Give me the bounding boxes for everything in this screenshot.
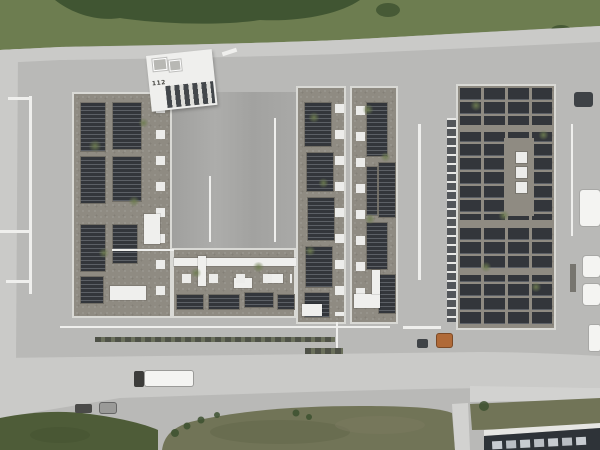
white-van	[583, 284, 600, 305]
hedge-section	[305, 348, 343, 354]
tree-clump	[376, 3, 400, 17]
rooftop-unit	[169, 59, 182, 71]
solar-array	[80, 276, 104, 304]
solar-array	[378, 274, 396, 314]
tower-louvers	[165, 81, 215, 108]
solar-array	[307, 197, 335, 241]
tower-roof-marking: 112	[152, 79, 167, 87]
pavement-strip	[570, 264, 576, 292]
parked-car	[75, 404, 92, 413]
moss-patch	[530, 282, 542, 292]
white-box-truck	[580, 190, 600, 226]
moss-patch	[318, 178, 329, 188]
perimeter-wall	[8, 97, 29, 100]
solar-array	[80, 156, 106, 204]
left-wing-roof	[72, 92, 172, 318]
roof-duct	[110, 286, 146, 300]
roof-aisle	[460, 220, 556, 227]
solar-array	[366, 222, 388, 270]
moss-patch	[470, 100, 482, 111]
white-van	[583, 256, 600, 277]
dividing-wall-far-east	[571, 124, 573, 236]
aerial-photo-industrial-complex: 112	[0, 0, 600, 450]
dark-car	[574, 92, 593, 107]
truck-trailer	[145, 371, 193, 386]
moss-patch	[190, 268, 202, 278]
perimeter-wall-west	[29, 96, 32, 294]
middle-hall-a-roof	[296, 86, 346, 324]
inner-parapet	[112, 249, 174, 251]
courtyard-marking-line	[209, 176, 211, 242]
right-hall-west-facade	[447, 118, 456, 322]
moss-patch	[128, 196, 140, 207]
roof-duct	[302, 304, 322, 316]
solar-array	[112, 224, 138, 264]
hedge-fence-south	[95, 337, 335, 342]
courtyard-marking-line	[274, 118, 276, 242]
skylight-column	[156, 104, 165, 296]
roof-aisle	[460, 268, 556, 275]
car-at-gate	[417, 339, 428, 348]
skylight-column	[335, 104, 344, 316]
skylight-column	[356, 106, 365, 298]
skylight	[516, 167, 527, 178]
roof-duct	[372, 270, 380, 294]
moss-patch	[252, 262, 265, 272]
solar-array	[378, 162, 396, 218]
moss-patch	[308, 112, 320, 123]
solar-array	[304, 102, 332, 147]
meadow-texture	[30, 427, 90, 443]
hose-tower: 112	[146, 49, 217, 112]
dividing-wall-east-yard	[418, 124, 421, 280]
field-texture	[210, 420, 350, 444]
orange-container	[437, 334, 452, 347]
solar-array	[244, 292, 274, 308]
white-vehicle-edge	[589, 325, 600, 351]
inner-courtyard	[172, 92, 296, 248]
skylight	[516, 182, 527, 193]
moss-patch	[480, 262, 492, 272]
solar-array	[112, 102, 142, 150]
moss-patch	[362, 104, 374, 115]
left-road	[0, 49, 18, 362]
middle-hall-b-roof	[350, 86, 398, 324]
truck-cab	[134, 371, 144, 387]
perimeter-wall	[6, 280, 29, 283]
solar-array	[208, 294, 240, 310]
roof-duct-main	[174, 258, 298, 266]
moss-patch	[364, 214, 376, 224]
perimeter-wall	[0, 230, 29, 233]
right-hall-roof	[456, 84, 556, 330]
field-texture	[335, 416, 425, 434]
moss-patch	[498, 210, 510, 221]
skylight	[516, 152, 527, 163]
solar-array	[176, 294, 204, 310]
moss-patch	[304, 246, 316, 256]
solar-array	[277, 294, 295, 310]
roof-duct	[354, 294, 380, 308]
moss-patch	[138, 118, 149, 128]
solar-array	[366, 166, 378, 216]
moss-patch	[538, 130, 549, 140]
moss-patch	[88, 140, 102, 152]
footpath	[452, 403, 470, 450]
gate-wall	[403, 326, 441, 329]
moss-patch	[98, 248, 110, 258]
bush	[479, 401, 489, 411]
solar-array	[112, 156, 142, 202]
moss-patch	[380, 152, 391, 162]
south-wing-roof	[172, 248, 296, 318]
perimeter-wall-south	[60, 326, 390, 328]
roof-duct	[144, 214, 160, 244]
rooftop-unit	[152, 58, 167, 71]
car-trailer	[100, 403, 116, 413]
